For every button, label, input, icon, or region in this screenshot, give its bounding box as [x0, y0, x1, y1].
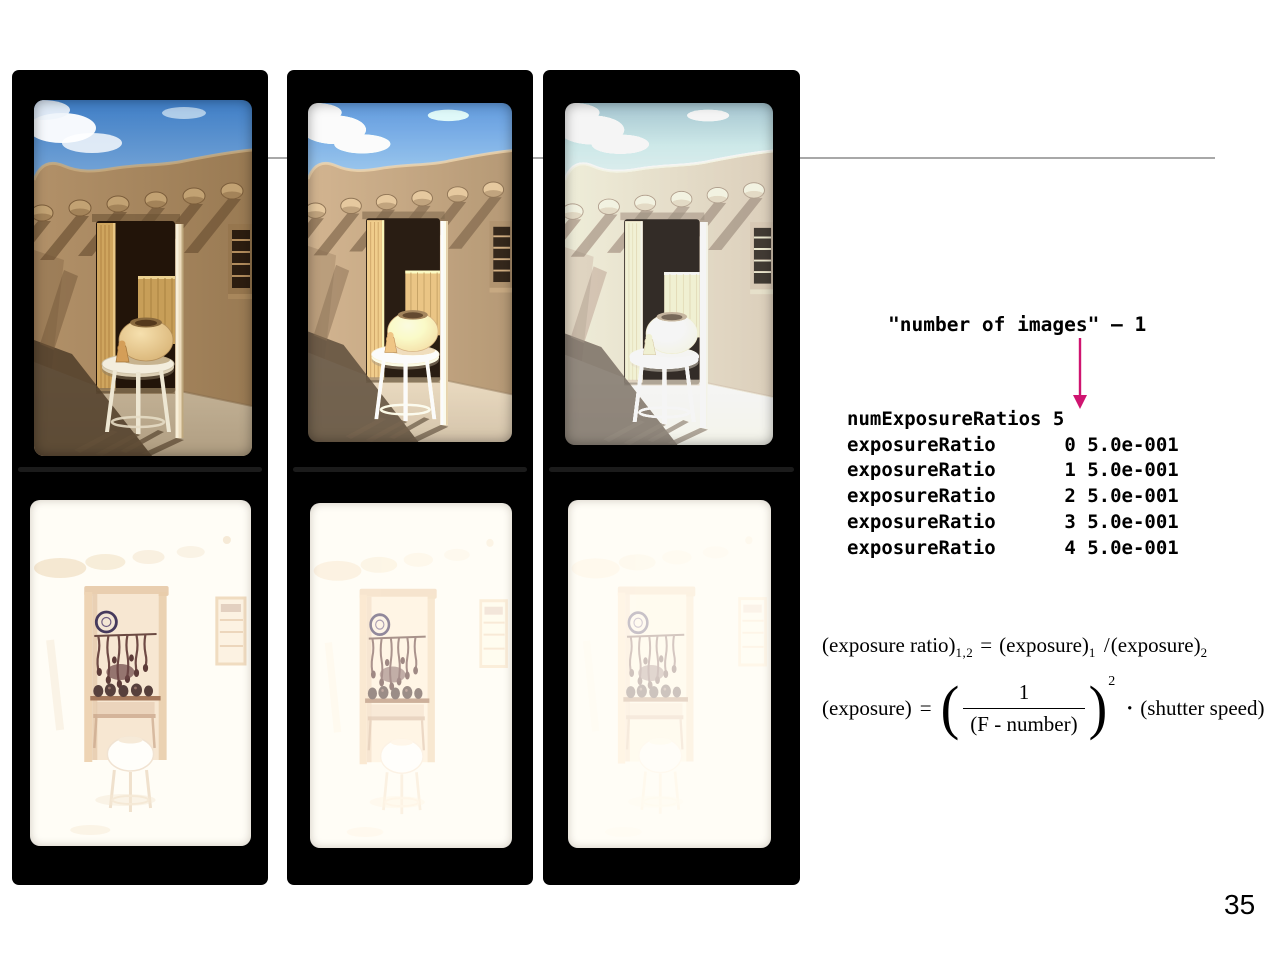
film-strip-column-3 — [543, 70, 800, 885]
adobe-house-photo — [565, 103, 773, 445]
exposure-ratios-code-block: numExposureRatios 5 exposureRatio 0 5.0e… — [847, 407, 1179, 561]
down-arrow-icon — [1072, 338, 1088, 410]
overexposed-interior-photo — [568, 500, 771, 848]
formula-term: (exposure ratio) — [822, 633, 956, 657]
division-slash: / — [1104, 633, 1110, 657]
fraction-numerator: 1 — [1015, 680, 1034, 708]
code-line: numExposureRatios 5 — [847, 407, 1179, 433]
equals-sign: = — [980, 633, 992, 657]
adobe-house-photo — [34, 100, 252, 456]
exposure-definition-formula: (exposure) = ( 1 (F - number) ) 2 · (shu… — [822, 669, 1265, 747]
formula-term: (exposure) — [822, 696, 912, 721]
code-line: exposureRatio 1 5.0e-001 — [847, 458, 1179, 484]
formula-subscript: 2 — [1201, 645, 1208, 660]
code-line: exposureRatio 4 5.0e-001 — [847, 536, 1179, 562]
exposure-ratio-formula: (exposure ratio)1,2=(exposure)1/(exposur… — [822, 633, 1208, 661]
film-strip-column-1 — [12, 70, 268, 885]
multiplication-dot: · — [1126, 696, 1133, 721]
film-strip-column-2 — [287, 70, 533, 885]
overexposed-interior-photo — [30, 500, 251, 846]
slide-frame-seam — [18, 467, 262, 472]
equals-sign: = — [920, 696, 932, 721]
fraction: 1 (F - number) — [963, 680, 1084, 737]
photo-exposure-4-overexposed — [30, 500, 251, 846]
code-line: exposureRatio 2 5.0e-001 — [847, 484, 1179, 510]
photo-exposure-5-overexposed — [310, 503, 512, 848]
overexposed-interior-photo — [310, 503, 512, 848]
code-line: exposureRatio 3 5.0e-001 — [847, 510, 1179, 536]
formula-term: (shutter speed) — [1140, 696, 1264, 721]
page-number: 35 — [1224, 889, 1255, 921]
photo-exposure-6-most-overexposed — [568, 500, 771, 848]
code-line: exposureRatio 0 5.0e-001 — [847, 433, 1179, 459]
adobe-house-photo — [308, 103, 512, 442]
presentation-slide: "number of images" – 1 numExposureRatios… — [0, 0, 1280, 960]
formula-subscript: 1,2 — [956, 645, 974, 660]
photo-exposure-2-brighter — [308, 103, 512, 442]
slide-frame-seam — [549, 467, 794, 472]
slide-frame-seam — [293, 467, 527, 472]
exponent: 2 — [1108, 674, 1115, 690]
formula-term: (exposure) — [999, 633, 1089, 657]
open-paren: ( — [941, 678, 960, 738]
formula-term: (exposure) — [1111, 633, 1201, 657]
formula-subscript: 1 — [1089, 645, 1096, 660]
close-paren: ) — [1089, 678, 1108, 738]
fraction-denominator: (F - number) — [963, 708, 1084, 737]
photo-exposure-1-normal — [34, 100, 252, 456]
annotation-number-of-images: "number of images" – 1 — [888, 313, 1146, 336]
photo-exposure-3-washed-out — [565, 103, 773, 445]
